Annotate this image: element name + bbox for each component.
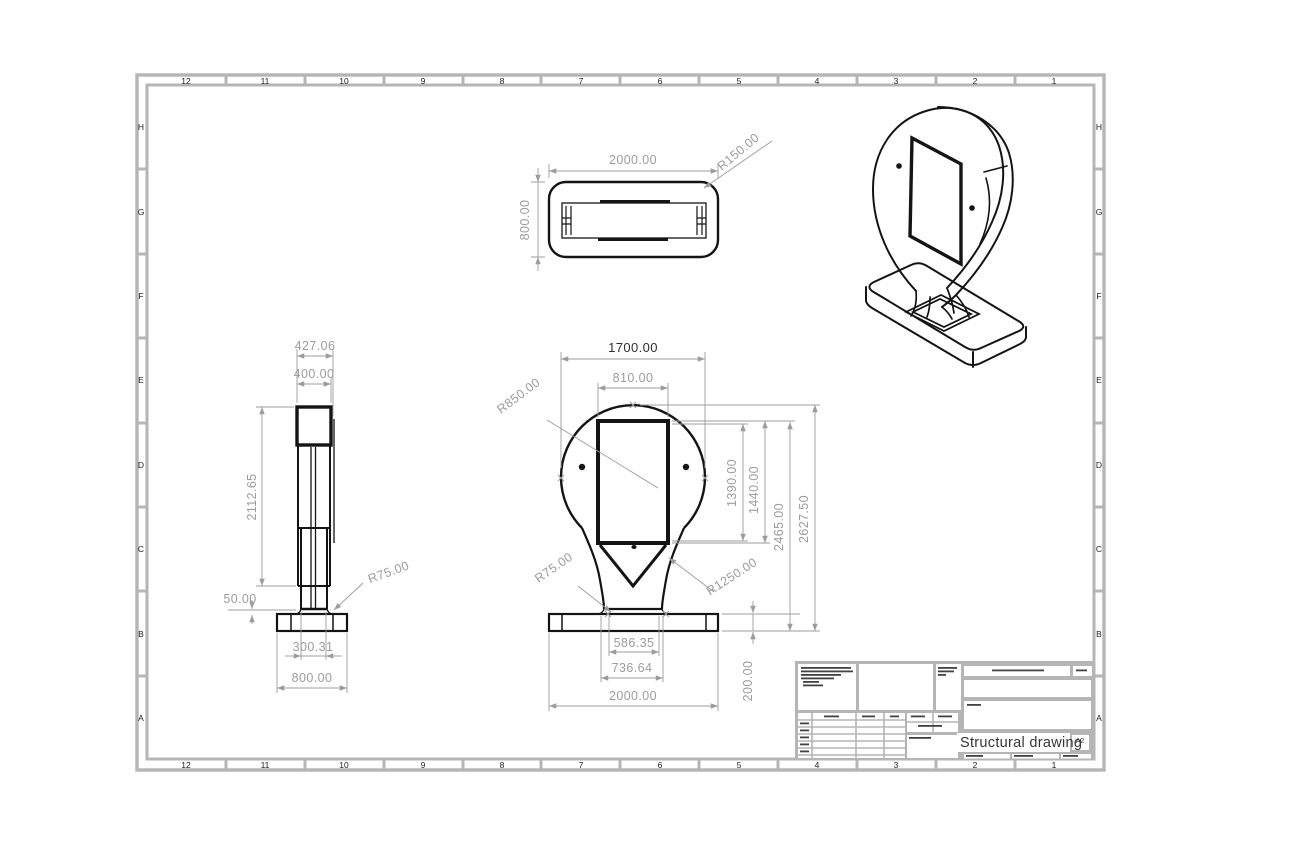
iso-right-hole <box>969 205 975 211</box>
zone-label: 5 <box>737 76 742 86</box>
dim-front-height-to-screen-top: 2465.00 <box>772 503 786 551</box>
top-view: 2000.00 800.00 R150.00 <box>518 130 772 271</box>
side-view-head <box>297 407 331 445</box>
side-view-base-lines <box>291 614 333 631</box>
zone-label: 9 <box>421 76 426 86</box>
zone-label: 10 <box>339 76 349 86</box>
dim-side-head-width: 400.00 <box>294 367 335 381</box>
dim-front-screen-width: 810.00 <box>613 371 654 385</box>
iso-head-crease <box>980 178 990 244</box>
dim-front-neck-width: 586.35 <box>614 636 655 650</box>
dim-front-base-height: 200.00 <box>741 661 755 702</box>
dim-side-overall-width: 427.06 <box>295 339 336 353</box>
top-view-outline <box>549 182 718 257</box>
front-view-bottom-dot <box>631 545 636 549</box>
zone-label: 12 <box>181 76 191 86</box>
side-view-base <box>277 614 347 631</box>
top-view-screen-edges <box>598 202 670 240</box>
zone-label: E <box>138 375 144 385</box>
zone-label: 7 <box>579 760 584 770</box>
zone-label: 5 <box>737 760 742 770</box>
title-label-cell <box>964 701 1091 729</box>
iso-base-top <box>869 263 1023 350</box>
dim-side-base-width: 800.00 <box>292 671 333 685</box>
iso-neck-pad <box>906 295 979 331</box>
drawing-sheet: 12 11 10 9 8 7 6 5 4 3 2 1 12 11 10 9 8 … <box>0 0 1307 843</box>
zone-label: G <box>138 207 145 217</box>
zone-label: 12 <box>181 760 191 770</box>
dim-top-depth: 800.00 <box>518 200 532 241</box>
zone-label: H <box>138 122 144 132</box>
zone-label: G <box>1096 207 1103 217</box>
front-view-base <box>549 614 718 631</box>
dim-front-overall-height: 2627.50 <box>797 495 811 543</box>
zone-label: 1 <box>1052 760 1057 770</box>
top-view-end-brackets <box>562 206 706 235</box>
front-view-dimensions: 1700.00 810.00 R850.00 1390.00 1440.00 2… <box>494 340 820 711</box>
front-view-base-lines <box>562 614 706 631</box>
front-view-v-notch <box>600 545 666 586</box>
zone-label: B <box>1096 629 1102 639</box>
zone-label: D <box>138 460 144 470</box>
dim-front-fillet-radius: R75.00 <box>532 550 575 586</box>
zone-label: F <box>1096 291 1101 301</box>
iso-head-back-outline <box>938 107 1013 307</box>
dim-front-neck-base-width: 736.64 <box>612 661 653 675</box>
zone-label: B <box>138 629 144 639</box>
front-view: 1700.00 810.00 R850.00 1390.00 1440.00 2… <box>494 340 820 711</box>
front-view-right-hole <box>683 464 689 470</box>
dim-front-screen-height: 1440.00 <box>747 466 761 514</box>
zone-label: A <box>1096 713 1102 723</box>
zone-label: 11 <box>261 76 270 86</box>
zone-label: 9 <box>421 760 426 770</box>
zone-label: E <box>1096 375 1102 385</box>
iso-screen <box>910 138 961 264</box>
front-view-left-hole <box>579 464 585 470</box>
zone-label: 3 <box>894 76 899 86</box>
sheet-size-code: A2 <box>1076 738 1085 745</box>
iso-head-front-outline <box>873 108 1003 291</box>
dim-top-corner-radius: R150.00 <box>715 130 762 173</box>
zone-label: F <box>138 291 143 301</box>
blank-cell <box>859 664 933 710</box>
dim-front-head-width: 1700.00 <box>608 340 658 355</box>
side-view-dimensions: 427.06 400.00 2112.65 50.00 R75.00 300.3… <box>223 339 411 693</box>
zone-label: D <box>1096 460 1102 470</box>
zone-label: 2 <box>973 76 978 86</box>
zone-label: 10 <box>339 760 349 770</box>
zone-label: C <box>1096 544 1102 554</box>
dim-side-column-width: 300.31 <box>293 640 334 654</box>
zone-label: 6 <box>658 760 663 770</box>
zone-label: 4 <box>815 76 820 86</box>
drawing-title: Structural drawing <box>960 735 1082 751</box>
dim-front-neck-radius: R1250.00 <box>704 555 760 598</box>
zone-label: 11 <box>261 760 270 770</box>
dim-front-base-width: 2000.00 <box>609 689 657 703</box>
dim-side-fillet-radius: R75.00 <box>366 558 411 586</box>
zone-label: H <box>1096 122 1102 132</box>
isometric-view <box>866 107 1026 367</box>
header-cell-2 <box>964 680 1091 697</box>
zone-label: 1 <box>1052 76 1057 86</box>
zone-label: 6 <box>658 76 663 86</box>
side-view-column-outer <box>298 445 330 586</box>
dim-side-column-height: 2112.65 <box>245 473 259 520</box>
zone-label: 4 <box>815 760 820 770</box>
zone-label: C <box>138 544 144 554</box>
top-view-inner-frame <box>562 203 706 238</box>
zone-label: 8 <box>500 76 505 86</box>
zone-label: 8 <box>500 760 505 770</box>
side-view: 427.06 400.00 2112.65 50.00 R75.00 300.3… <box>223 339 411 693</box>
zone-label: A <box>138 713 144 723</box>
dim-top-width: 2000.00 <box>609 153 657 167</box>
dim-side-fillet-offset: 50.00 <box>223 592 256 606</box>
zone-label: 3 <box>894 760 899 770</box>
title-block: Structural drawing A2 <box>795 661 1094 759</box>
dim-front-screen-opening-height: 1390.00 <box>725 459 739 507</box>
dim-front-head-radius: R850.00 <box>494 375 542 416</box>
drawing-canvas: 12 11 10 9 8 7 6 5 4 3 2 1 12 11 10 9 8 … <box>0 0 1307 843</box>
zone-label: 7 <box>579 76 584 86</box>
zone-label: 2 <box>973 760 978 770</box>
side-view-column-inner <box>298 528 330 609</box>
iso-left-hole <box>896 163 902 169</box>
front-view-screen <box>598 421 668 543</box>
